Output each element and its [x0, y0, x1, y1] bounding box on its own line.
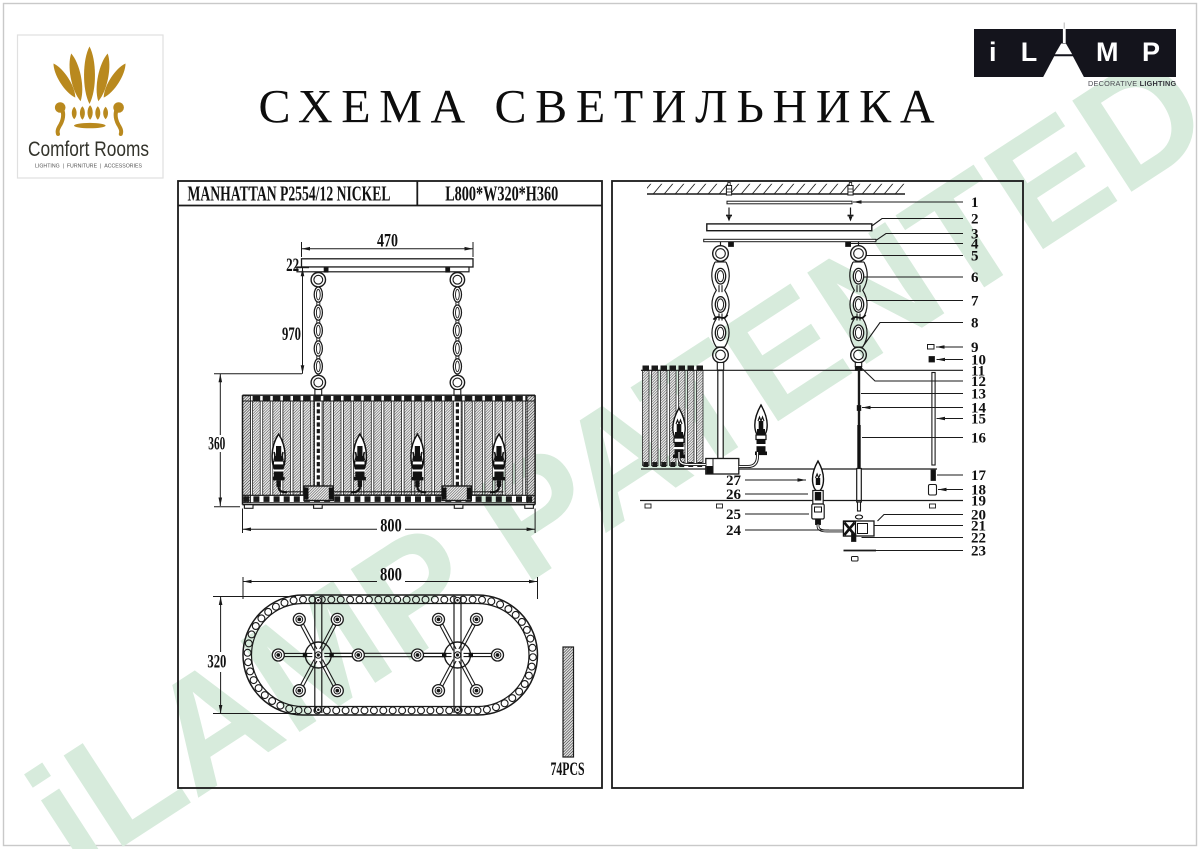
- svg-text:800: 800: [380, 565, 402, 586]
- svg-text:25: 25: [726, 507, 741, 523]
- svg-text:P: P: [1142, 37, 1160, 67]
- svg-text:СХЕМА СВЕТИЛЬНИКА: СХЕМА СВЕТИЛЬНИКА: [259, 81, 935, 134]
- svg-text:470: 470: [377, 231, 398, 252]
- svg-text:DECORATIVE LIGHTING: DECORATIVE LIGHTING: [1088, 79, 1177, 88]
- svg-text:24: 24: [726, 523, 742, 539]
- svg-text:L800*W320*H360: L800*W320*H360: [445, 182, 558, 206]
- svg-text:26: 26: [726, 487, 742, 503]
- svg-text:7: 7: [971, 294, 979, 310]
- svg-text:5: 5: [971, 249, 979, 265]
- svg-text:74PCS: 74PCS: [551, 759, 585, 780]
- svg-text:800: 800: [380, 516, 402, 537]
- svg-text:M: M: [1096, 37, 1119, 67]
- svg-text:23: 23: [971, 544, 986, 560]
- svg-text:MANHATTAN P2554/12 NICKEL: MANHATTAN P2554/12 NICKEL: [188, 182, 391, 206]
- svg-text:LIGHTING | FURNITURE | ACC: LIGHTING | FURNITURE | ACCESSORIES: [35, 164, 142, 170]
- svg-text:1: 1: [971, 195, 979, 211]
- svg-text:6: 6: [971, 270, 979, 286]
- svg-text:15: 15: [971, 412, 986, 428]
- svg-text:i: i: [989, 37, 997, 67]
- svg-text:Comfort Rooms: Comfort Rooms: [28, 138, 149, 161]
- svg-text:16: 16: [971, 431, 987, 447]
- svg-text:2: 2: [971, 212, 979, 228]
- svg-text:8: 8: [971, 316, 979, 332]
- svg-text:320: 320: [207, 652, 226, 673]
- svg-text:22: 22: [286, 255, 299, 276]
- svg-text:970: 970: [282, 324, 301, 345]
- svg-text:360: 360: [208, 434, 225, 455]
- svg-text:L: L: [1021, 37, 1038, 67]
